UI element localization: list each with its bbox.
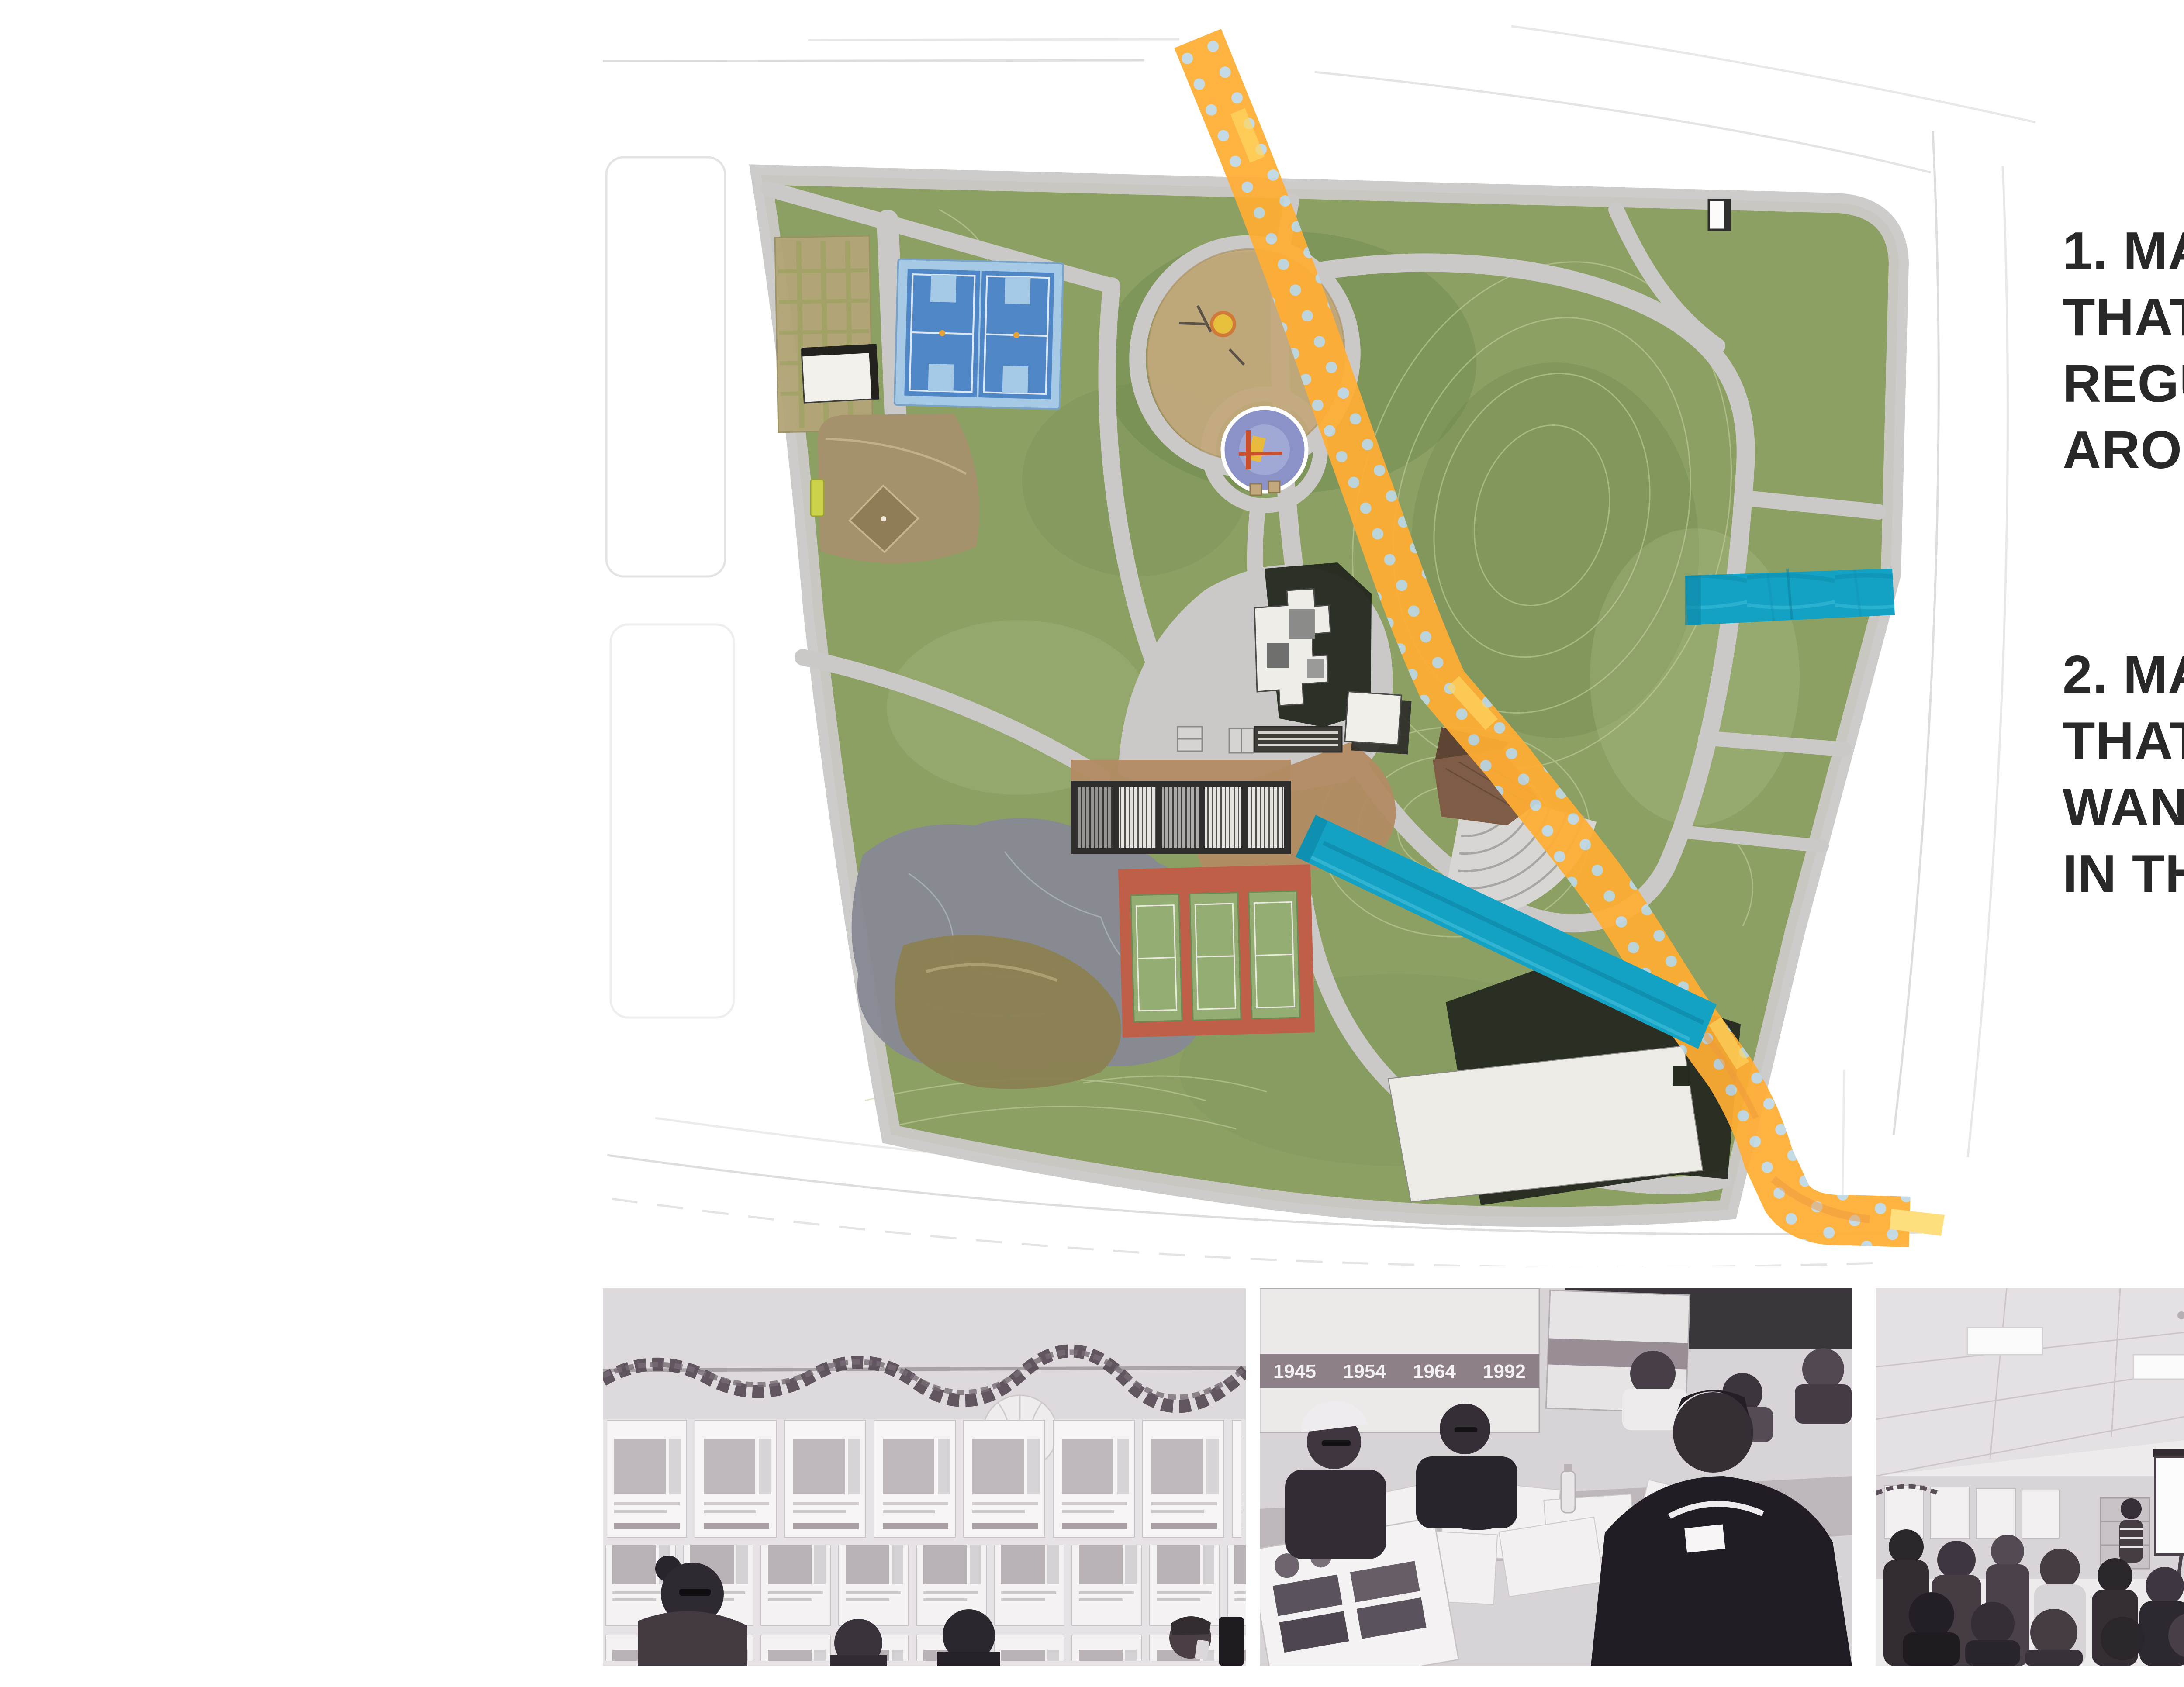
svg-text:1954: 1954 [1343,1361,1386,1382]
bench [811,480,824,516]
instruction-2: 2. MARK ROUTES THAT YOU WOULD WANT TO BE… [2063,641,2184,907]
instruction-1: 1. MARK ROUTES THAT YOU USE REGULARLY TO… [2063,217,2184,483]
instruction-2-line: THAT YOU WOULD [2063,707,2184,774]
basketball-courts [895,259,1064,409]
splash-pad [1223,408,1306,495]
restroom-building [1709,200,1730,230]
baseball-diamond [818,414,979,563]
storage-building [1344,692,1412,755]
tan-strip [1071,760,1291,782]
svg-text:1945: 1945 [1273,1361,1316,1382]
park-map [0,0,2053,1266]
instruction-1-line: 1. MARK ROUTES [2063,217,2184,284]
instruction-2-line: IN THE FUTURE [2063,840,2184,907]
photo-presentation-meeting [1876,1288,2184,1666]
maintenance-building [802,344,879,403]
map-sheets-row [607,1411,1241,1539]
picnic-shelter [1254,727,1342,752]
photo-wall-of-maps [603,1288,1246,1666]
svg-text:1992: 1992 [1483,1361,1526,1382]
ceiling-light [2133,1355,2184,1379]
name-tag [1684,1525,1725,1553]
svg-text:1964: 1964 [1413,1361,1456,1382]
presenter [2119,1498,2143,1563]
instruction-2-line: 2. MARK ROUTES [2063,641,2184,707]
instruction-2-line: WANT TO BE ADDED [2063,774,2184,840]
instruction-1-line: THAT YOU USE [2063,284,2184,350]
ceiling-light [1967,1328,2042,1355]
community-garden [775,236,873,432]
tennis-courts [1118,864,1315,1037]
photo-workshop-table: 1945 1954 1964 1992 [1260,1288,1852,1666]
instruction-1-line: AROUND THE PARK [2063,417,2184,483]
water-bottle [1561,1464,1575,1513]
instruction-1-line: REGULARLY TO GET [2063,350,2184,417]
parking-structures [1071,781,1291,854]
